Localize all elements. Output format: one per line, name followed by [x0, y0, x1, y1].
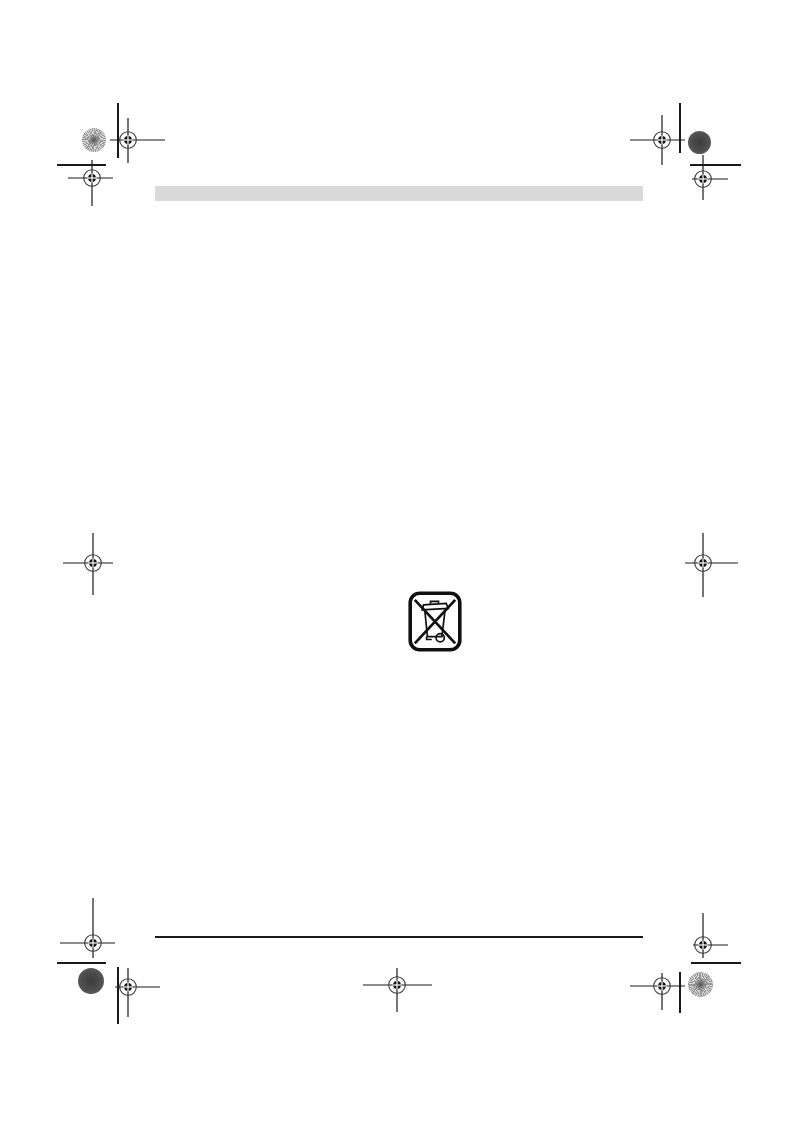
- color-patch-solid-dark: [688, 131, 711, 154]
- color-patch-halftone-light: [82, 128, 106, 152]
- trim-mark: [117, 967, 119, 1024]
- page-canvas: [0, 0, 797, 1128]
- trim-mark: [679, 972, 681, 1013]
- trim-mark: [57, 164, 106, 166]
- header-bar: [155, 186, 643, 201]
- footer-rule: [155, 936, 643, 938]
- registration-mark-icon: [68, 160, 113, 206]
- registration-mark-icon: [693, 913, 728, 958]
- color-patch-solid-dark: [78, 968, 104, 994]
- registration-mark-icon: [60, 898, 115, 958]
- trim-mark: [679, 103, 681, 153]
- color-patch-halftone-light: [688, 972, 713, 997]
- registration-mark-icon: [63, 533, 113, 595]
- registration-mark-icon: [630, 973, 685, 1010]
- trim-mark: [57, 962, 106, 964]
- trim-mark: [117, 103, 119, 158]
- registration-mark-icon: [115, 968, 160, 1017]
- registration-mark-icon: [630, 115, 685, 165]
- weee-crossed-wheelie-bin-icon: [408, 591, 462, 652]
- trim-mark: [691, 962, 741, 964]
- trim-mark: [690, 164, 741, 166]
- registration-mark-icon: [363, 968, 432, 1012]
- registration-mark-icon: [685, 533, 738, 597]
- registration-mark-icon: [692, 155, 728, 200]
